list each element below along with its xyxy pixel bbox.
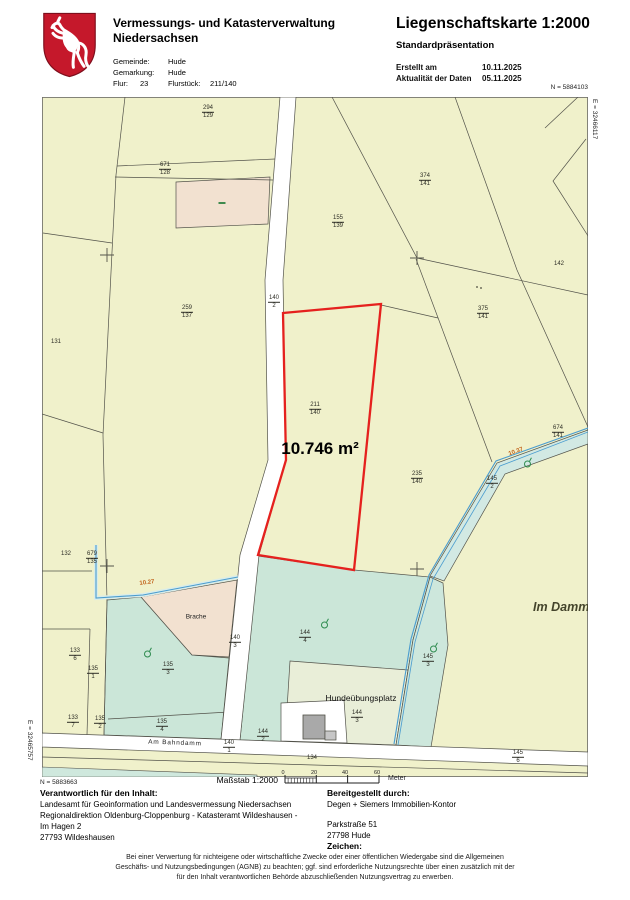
map-text-label: 10.27 xyxy=(139,579,155,587)
document-dates: Erstellt am 10.11.2025 Aktualität der Da… xyxy=(396,62,596,84)
agency-title: Vermessungs- und Katasterverwaltung Nied… xyxy=(113,16,335,45)
parcel-label: 155139 xyxy=(332,215,344,229)
parcel-label: 1442 xyxy=(257,729,269,743)
tree-symbol-icon xyxy=(321,619,329,628)
tree-symbol-icon xyxy=(430,643,438,652)
agency-line1: Vermessungs- und Katasterverwaltung xyxy=(113,16,335,31)
parcel-label: 1353 xyxy=(162,662,174,676)
parcel-label: 211140 xyxy=(309,402,321,416)
dots-symbol-icon xyxy=(476,286,478,288)
provider-name: Degen + Siemers Immobilien-Kontor xyxy=(327,799,587,810)
parcel-label: 1453 xyxy=(422,654,434,668)
provider-label: Bereitgestellt durch: xyxy=(327,788,587,799)
spacer xyxy=(327,810,587,819)
parcel-label: 1336 xyxy=(69,648,81,662)
parcel-label: 671128 xyxy=(159,162,171,176)
grid-north-top: N = 5884103 xyxy=(420,84,588,91)
map-text-label: Am Bahndamm xyxy=(148,739,202,748)
created-label: Erstellt am xyxy=(396,62,437,73)
map-text-label: 10.37 xyxy=(508,447,524,458)
saxon-steed-shield-icon xyxy=(42,12,97,78)
tree-symbol-icon xyxy=(144,648,152,657)
parcel-label: 679135 xyxy=(86,551,98,565)
scale-unit: Meter xyxy=(388,775,406,782)
tree-symbol-icon xyxy=(524,458,532,467)
zeichen-label: Zeichen: xyxy=(327,841,587,852)
parcel-label: 1403 xyxy=(229,635,241,649)
grid-east-right: E = 32466117 xyxy=(591,99,598,139)
agency-line2: Niedersachsen xyxy=(113,31,335,46)
page-subtitle: Standardpräsentation xyxy=(396,40,494,51)
map-text-label: 131 xyxy=(51,339,61,345)
scale-bar: Maßstab 1:2000 0 20 40 60 Meter xyxy=(160,769,440,787)
parcel-label: 259137 xyxy=(181,305,193,319)
gemarkung-value: Hude xyxy=(168,67,186,78)
grid-east-left: E = 32465757 xyxy=(26,720,33,761)
flur-value: 23 xyxy=(140,78,148,89)
parcel-label: 235140 xyxy=(411,471,423,485)
responsible-line: Landesamt für Geoinformation und Landesv… xyxy=(40,799,325,810)
parcel-label: 1351 xyxy=(87,666,99,680)
disclaimer-text: Bei einer Verwertung für nichteigene ode… xyxy=(115,853,515,883)
parcel-metadata: Gemeinde: Hude Gemarkung: Hude Flur: 23 … xyxy=(113,56,313,89)
currency-value: 05.11.2025 xyxy=(482,73,522,84)
parcel-label: 1444 xyxy=(299,630,311,644)
parcel-label: 1402 xyxy=(268,295,280,309)
scale-label: Maßstab 1:2000 xyxy=(160,775,278,785)
map-text-label: Im Dammb xyxy=(533,600,588,614)
provider-city: 27798 Hude xyxy=(327,830,587,841)
map-text-label: Brache xyxy=(186,614,207,621)
parcel-label: 1337 xyxy=(67,715,79,729)
map-text-label: 142 xyxy=(554,261,564,267)
parcel-label: 1456 xyxy=(512,750,524,764)
flur-label: Flur: xyxy=(113,78,128,89)
responsible-line: Im Hagen 2 xyxy=(40,821,325,832)
grid-north-bottom: N = 5883663 xyxy=(40,779,77,786)
parcel-label: 674141 xyxy=(552,425,564,439)
responsible-line: 27793 Wildeshausen xyxy=(40,832,325,843)
map-text-label: 10.746 m² xyxy=(281,439,359,459)
currency-label: Aktualität der Daten xyxy=(396,73,472,84)
map-label-layer: 2941296711283741411551392591371402375141… xyxy=(42,97,588,777)
flurstueck-label: Flurstück: xyxy=(168,78,201,89)
gemeinde-label: Gemeinde: xyxy=(113,56,150,67)
niedersachsen-coat-of-arms xyxy=(42,12,97,78)
map-text-label: 132 xyxy=(61,551,71,557)
dash-symbol-icon xyxy=(219,202,226,204)
map-text-label: Hundeübungsplatz xyxy=(326,693,397,703)
parcel-label: 1443 xyxy=(351,710,363,724)
parcel-label: 1354 xyxy=(156,719,168,733)
parcel-label: 294129 xyxy=(202,105,214,119)
gemarkung-label: Gemarkung: xyxy=(113,67,154,78)
gemeinde-value: Hude xyxy=(168,56,186,67)
page-title: Liegenschaftskarte 1:2000 xyxy=(396,15,590,33)
created-value: 10.11.2025 xyxy=(482,62,522,73)
cadastral-map: 2941296711283741411551392591371402375141… xyxy=(42,97,588,777)
parcel-label: 375141 xyxy=(477,306,489,320)
parcel-label: 1352 xyxy=(94,716,106,730)
parcel-label: 374141 xyxy=(419,173,431,187)
scale-bar-graphic xyxy=(283,769,383,787)
provider-street: Parkstraße 51 xyxy=(327,819,587,830)
map-text-label: 134 xyxy=(307,755,317,761)
provider-block: Bereitgestellt durch: Degen + Siemers Im… xyxy=(327,788,587,852)
parcel-label: 1452 xyxy=(486,476,498,490)
flurstueck-value: 211/140 xyxy=(210,78,237,89)
responsible-block: Verantwortlich für den Inhalt: Landesamt… xyxy=(40,788,325,843)
responsible-label: Verantwortlich für den Inhalt: xyxy=(40,788,325,799)
parcel-label: 1401 xyxy=(223,740,235,754)
responsible-line: Regionaldirektion Oldenburg-Cloppenburg … xyxy=(40,810,325,821)
